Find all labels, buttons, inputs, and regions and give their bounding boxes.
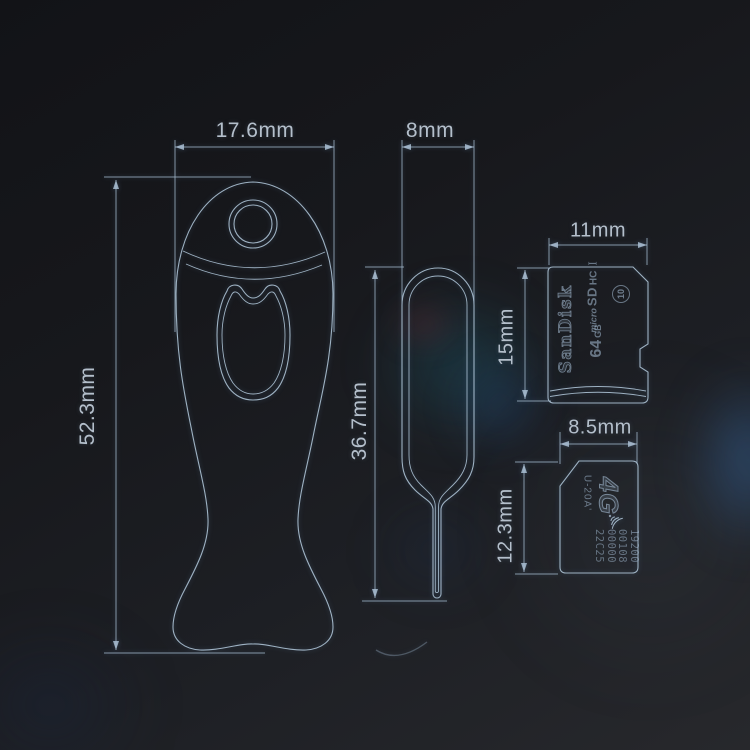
sd-logo-hc: HC bbox=[589, 271, 600, 285]
sim-serial-line: 22C25 bbox=[593, 529, 605, 563]
fish-hole-inner bbox=[222, 292, 285, 394]
sim-serial-line: 19200 bbox=[628, 529, 640, 563]
sim-network-text: 4G bbox=[593, 477, 624, 515]
sd-capacity-unit: GB bbox=[593, 324, 603, 338]
pin-inner bbox=[409, 276, 467, 593]
sim-eject-pin-outline bbox=[402, 268, 474, 598]
fish-width-label: 17.6mm bbox=[216, 119, 295, 143]
sd-height-label: 15mm bbox=[496, 308, 519, 366]
pin-outer bbox=[402, 268, 474, 598]
sd-logo-sd: SD bbox=[585, 287, 600, 306]
sim-serial-line: 00000 bbox=[604, 529, 616, 563]
dim-fish-height bbox=[104, 177, 265, 653]
sim-width-label: 8.5mm bbox=[568, 417, 632, 440]
class-10-badge: 10 bbox=[612, 285, 630, 303]
sim-model-text: U-20A' bbox=[582, 475, 593, 511]
fish-band-arc-1 bbox=[183, 251, 325, 268]
sim-serial-block: 19200 00108 00000 22C25 bbox=[593, 529, 639, 563]
dim-sim-height bbox=[515, 462, 558, 574]
fish-opener-outline bbox=[173, 182, 333, 650]
sim-height-label: 12.3mm bbox=[495, 488, 518, 563]
fish-eye-outer bbox=[229, 200, 277, 248]
dim-pin-width bbox=[402, 140, 474, 310]
pin-width-label: 8mm bbox=[406, 119, 454, 143]
sd-card-lip-2 bbox=[550, 392, 646, 396]
pin-height-label: 36.7mm bbox=[348, 382, 372, 461]
fish-band-arc-2 bbox=[186, 264, 322, 279]
sd-class-number: 10 bbox=[616, 289, 626, 299]
sd-width-label: 11mm bbox=[570, 220, 626, 243]
sd-format-logo: micro SD HC I bbox=[585, 261, 600, 332]
sd-capacity-number: 64 bbox=[588, 340, 606, 358]
fish-height-label: 52.3mm bbox=[76, 367, 100, 446]
reflection-swoosh bbox=[376, 642, 427, 655]
sim-serial-line: 00108 bbox=[616, 529, 628, 563]
sd-logo-uhs: I bbox=[587, 261, 600, 265]
dim-pin-height bbox=[362, 267, 447, 601]
dim-fish-width bbox=[175, 140, 334, 332]
fish-body-outline bbox=[173, 182, 333, 650]
sd-card-lip-1 bbox=[550, 387, 646, 392]
signal-icon bbox=[609, 515, 623, 529]
dim-sd-height bbox=[517, 268, 551, 401]
fish-eye-inner bbox=[234, 205, 272, 243]
line-drawing bbox=[0, 0, 750, 750]
sd-brand-text: SanDisk bbox=[556, 285, 576, 374]
sd-capacity: 64 GB bbox=[588, 324, 606, 357]
diagram-canvas: 17.6mm 8mm 11mm 8.5mm 52.3mm 36.7mm 15mm… bbox=[0, 0, 750, 750]
